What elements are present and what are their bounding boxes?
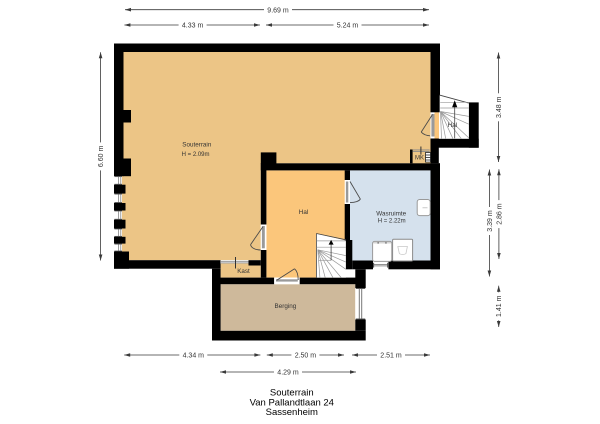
svg-text:Kast: Kast: [237, 268, 250, 275]
svg-text:H = 2.22m: H = 2.22m: [378, 218, 406, 224]
svg-text:5.24 m: 5.24 m: [337, 23, 359, 30]
svg-text:MK: MK: [415, 156, 424, 162]
svg-text:H = 2.09m: H = 2.09m: [182, 152, 210, 158]
svg-text:3.48 m: 3.48 m: [496, 96, 503, 118]
svg-text:6.60 m: 6.60 m: [98, 146, 105, 168]
svg-text:1.41 m: 1.41 m: [496, 295, 503, 317]
svg-text:Berging: Berging: [275, 303, 297, 310]
svg-text:3.39 m: 3.39 m: [487, 210, 494, 232]
svg-text:2.51 m: 2.51 m: [380, 353, 402, 360]
svg-text:Sassenheim: Sassenheim: [266, 407, 318, 418]
svg-text:4.33 m: 4.33 m: [182, 23, 204, 30]
svg-text:9.69 m: 9.69 m: [267, 7, 289, 14]
svg-text:2.86 m: 2.86 m: [496, 203, 503, 225]
svg-text:Souterrain: Souterrain: [182, 142, 212, 149]
svg-text:Hal: Hal: [448, 122, 457, 129]
svg-text:4.34 m: 4.34 m: [183, 353, 205, 360]
svg-text:Wasruimte: Wasruimte: [376, 211, 406, 218]
svg-text:4.29 m: 4.29 m: [277, 370, 299, 377]
svg-text:Hal: Hal: [299, 209, 308, 216]
svg-text:2.50 m: 2.50 m: [295, 353, 317, 360]
